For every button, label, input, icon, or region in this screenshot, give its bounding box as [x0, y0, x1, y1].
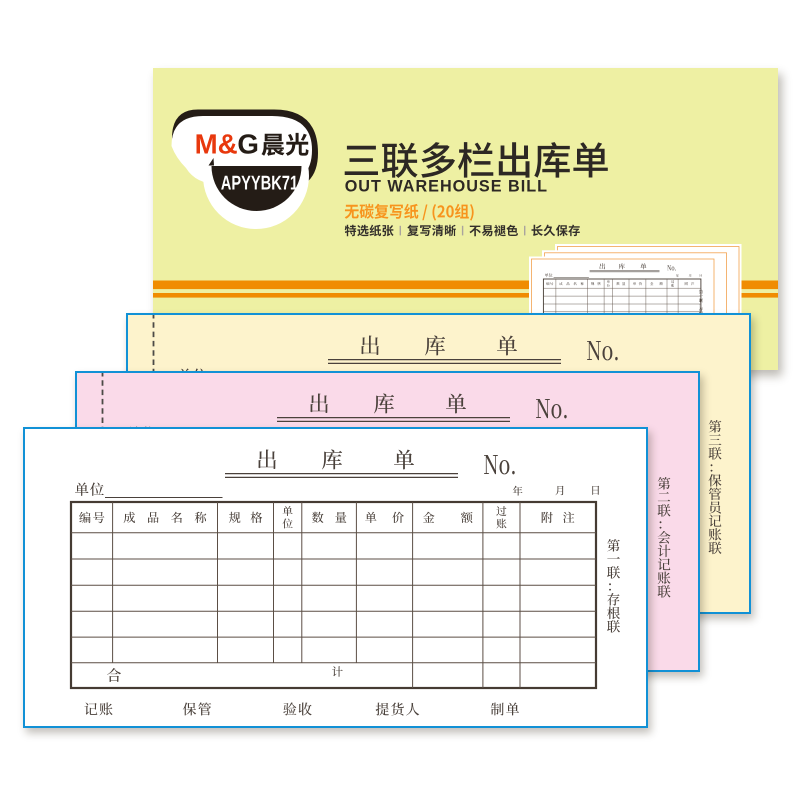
svg-text:OUT WAREHOUSE BILL: OUT WAREHOUSE BILL	[345, 178, 547, 196]
